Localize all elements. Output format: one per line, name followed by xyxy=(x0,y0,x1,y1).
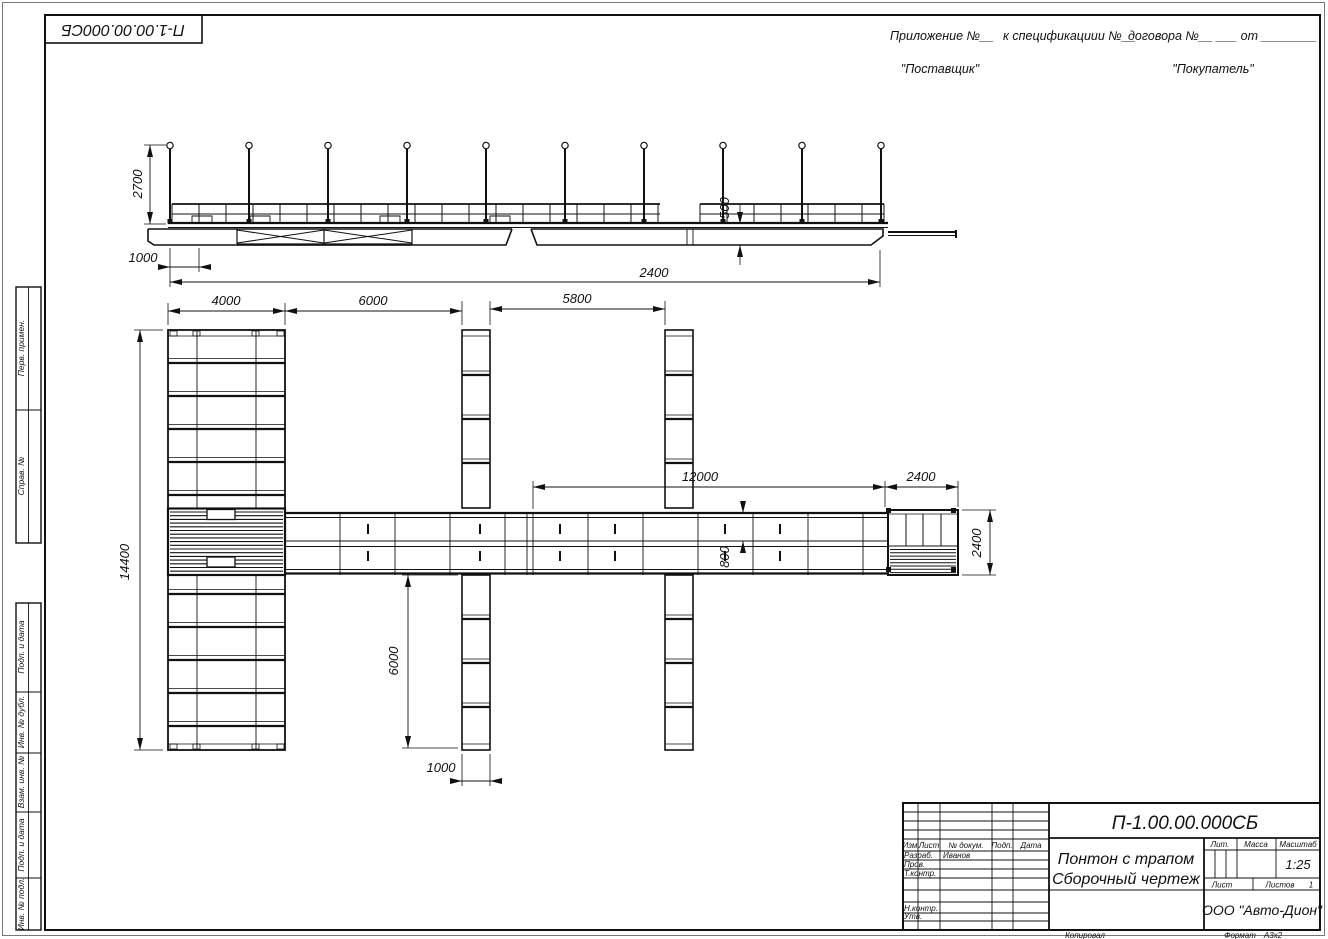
kopiroval-label: Копировал xyxy=(1065,931,1105,939)
format-label: Формат xyxy=(1224,931,1256,939)
dim-ramp-offset-label: 1000 xyxy=(129,250,159,265)
buyer-label: "Покупатель" xyxy=(1172,62,1254,76)
spec-text: к спецификациии №__ xyxy=(1003,29,1136,43)
massa-label: Масса xyxy=(1244,840,1268,849)
row-prov: Пров. xyxy=(904,860,925,869)
scale-value: 1:25 xyxy=(1285,857,1311,872)
dim-platform-width-label: 2400 xyxy=(969,528,984,559)
dim-platform-length-label: 2400 xyxy=(906,469,937,484)
contract-text: договора №__ ___ от ________ xyxy=(1128,29,1317,43)
margin-label-inv-dubl: Инв. № дубл. xyxy=(16,696,26,748)
dim-gap2-label: 5800 xyxy=(563,291,593,306)
shore-gangway xyxy=(888,230,956,238)
dim-gap1-label: 6000 xyxy=(359,293,389,308)
titleblock-doc-number: П-1.00.00.000СБ xyxy=(1112,813,1259,834)
plan-view xyxy=(168,330,958,750)
margin-label-perv-primen: Перв. примен. xyxy=(16,320,26,377)
col-izm: Изм xyxy=(903,841,918,850)
col-doc: № докум. xyxy=(948,841,983,850)
dim-lane-width-label: 800 xyxy=(717,545,732,567)
margin-label-podp-data-1: Подп. и дата xyxy=(16,620,26,673)
railing xyxy=(172,204,884,223)
dim-pole-height-label: 2700 xyxy=(130,169,145,200)
drawing-title-line2: Сборочный чертеж xyxy=(1052,871,1201,888)
central-walkway xyxy=(285,513,888,575)
flag-poles xyxy=(167,142,884,223)
end-platform xyxy=(886,508,958,575)
drawing-sheet: П-1.00.00.000СБ Перв. примен. Справ. № П… xyxy=(0,0,1328,939)
col-list: Лист xyxy=(918,841,940,850)
row-tkontr: Т.контр. xyxy=(904,869,936,878)
margin-label-sprav-no: Справ. № xyxy=(16,457,26,496)
corner-stamp: П-1.00.00.000СБ xyxy=(45,15,202,43)
listov-value: 1 xyxy=(1309,881,1313,890)
margin-label-inv-podl: Инв. № подл. xyxy=(16,878,26,931)
row-razrab-name: Иванов xyxy=(943,851,970,860)
scissor-mechanism xyxy=(237,229,412,245)
company-name: ООО "Авто-Дион" xyxy=(1202,902,1323,918)
listov-label: Листов xyxy=(1264,881,1294,890)
col-podp: Подп. xyxy=(991,841,1012,850)
supplier-label: "Поставщик" xyxy=(901,62,980,76)
dim-freeboard-label: 500 xyxy=(717,196,732,218)
margin-stamp-labels: Перв. примен. Справ. № Подп. и дата Инв.… xyxy=(16,320,26,931)
appendix-header: Приложение №__ к спецификациии №__ догов… xyxy=(890,29,1317,76)
title-block-text: П-1.00.00.000СБ Изм Лист № докум. Подп. … xyxy=(903,813,1323,939)
row-razrab: Разраб. xyxy=(904,851,933,860)
finger-piers xyxy=(462,330,693,750)
margin-label-podp-data-2: Подп. и дата xyxy=(16,818,26,871)
col-data: Дата xyxy=(1019,841,1042,850)
row-utv: Утв. xyxy=(903,912,922,921)
corner-doc-number: П-1.00.00.000СБ xyxy=(61,21,184,38)
deck xyxy=(168,216,888,228)
hull-outline xyxy=(148,229,883,245)
list-label: Лист xyxy=(1211,881,1233,890)
sheet-frame xyxy=(3,3,1325,936)
dim-pontoon-width-label: 4000 xyxy=(212,293,242,308)
dim-section-label: 2400 xyxy=(639,265,670,280)
dim-finger-width-label: 1000 xyxy=(427,760,457,775)
drawing-title-line1: Понтон с трапом xyxy=(1058,851,1195,868)
margin-label-vzam-inv: Взам. инв. № xyxy=(16,756,26,809)
masshtab-label: Масштаб xyxy=(1279,840,1317,849)
format-value: А3х2 xyxy=(1263,931,1283,939)
dim-pontoon-length-label: 14400 xyxy=(117,543,132,580)
lit-label: Лит. xyxy=(1210,840,1230,849)
appendix-text: Приложение №__ xyxy=(890,29,994,43)
boarding-ramp-hatched xyxy=(168,509,285,576)
side-view-dimension-labels: 2700 1000 500 2400 xyxy=(129,169,732,280)
dim-walkway-length-label: 12000 xyxy=(682,469,719,484)
dim-finger-length-label: 6000 xyxy=(386,646,401,676)
side-view xyxy=(148,142,956,245)
